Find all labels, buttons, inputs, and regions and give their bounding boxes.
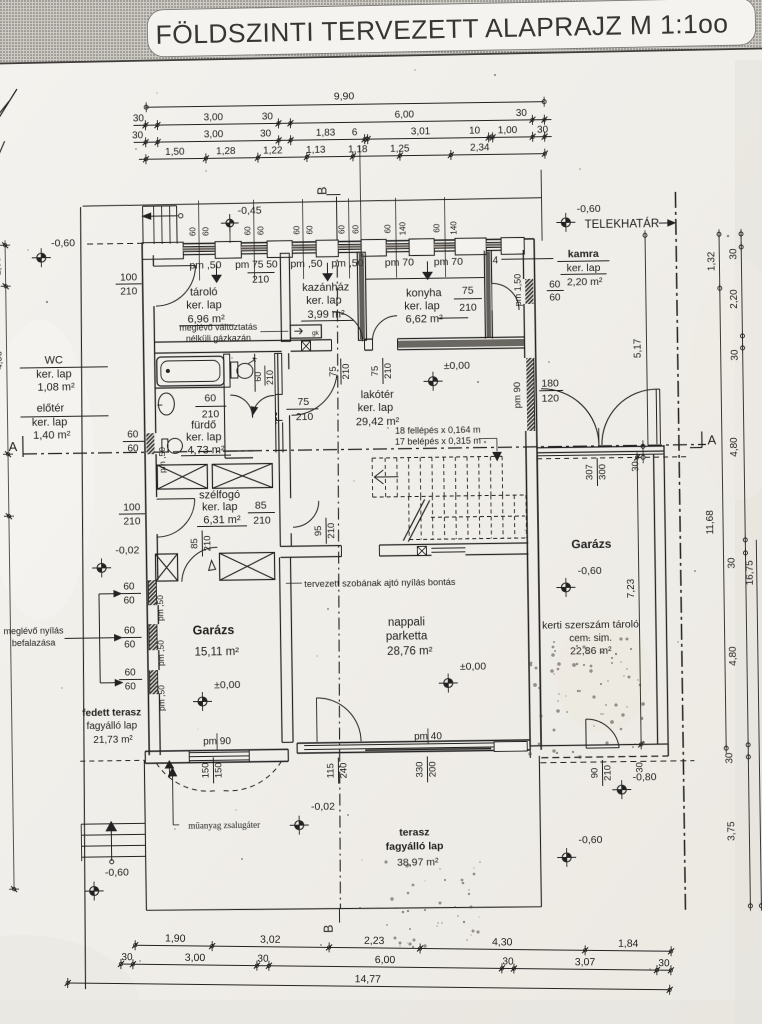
svg-text:cem. sim.: cem. sim. xyxy=(569,633,612,645)
svg-text:1,08 m²: 1,08 m² xyxy=(37,381,75,394)
svg-text:kamra: kamra xyxy=(568,248,599,260)
svg-text:210: 210 xyxy=(602,765,613,781)
svg-text:1,00: 1,00 xyxy=(498,125,518,136)
svg-text:60: 60 xyxy=(125,681,137,692)
svg-text:pm ,50: pm ,50 xyxy=(156,640,166,666)
svg-text:szélfogó: szélfogó xyxy=(199,489,240,502)
svg-text:60: 60 xyxy=(127,443,139,454)
svg-text:ker. lap: ker. lap xyxy=(358,402,394,414)
svg-text:befalazása: befalazása xyxy=(12,638,56,649)
svg-text:150: 150 xyxy=(213,762,224,778)
svg-text:kerti szerszám tároló: kerti szerszám tároló xyxy=(542,618,639,631)
svg-text:15,11 m²: 15,11 m² xyxy=(194,646,239,659)
svg-text:Garázs: Garázs xyxy=(193,623,235,638)
svg-text:6,00: 6,00 xyxy=(395,109,415,120)
svg-text:ker. lap: ker. lap xyxy=(32,416,68,428)
svg-text:4,80: 4,80 xyxy=(728,646,739,666)
svg-text:30: 30 xyxy=(257,954,269,965)
svg-text:3,02: 3,02 xyxy=(260,934,281,946)
svg-text:210: 210 xyxy=(341,363,352,379)
svg-text:6,00: 6,00 xyxy=(375,954,396,966)
svg-text:2,34: 2,34 xyxy=(470,142,490,153)
svg-text:gk: gk xyxy=(312,330,320,337)
svg-text:14,77: 14,77 xyxy=(355,973,382,985)
svg-text:-0,80: -0,80 xyxy=(633,771,657,783)
svg-text:1,28: 1,28 xyxy=(216,146,236,157)
svg-text:60: 60 xyxy=(123,595,135,606)
svg-text:1,25: 1,25 xyxy=(390,144,410,155)
svg-text:ker. lap: ker. lap xyxy=(36,368,72,380)
svg-text:60: 60 xyxy=(188,227,197,237)
svg-text:30: 30 xyxy=(262,111,274,122)
svg-text:3,75: 3,75 xyxy=(726,821,737,841)
svg-text:ker. lap: ker. lap xyxy=(202,501,238,513)
svg-text:1,40 m²: 1,40 m² xyxy=(33,429,71,442)
svg-text:115: 115 xyxy=(325,763,336,778)
svg-text:60: 60 xyxy=(124,667,136,678)
svg-text:30: 30 xyxy=(630,461,641,472)
svg-text:2,23: 2,23 xyxy=(364,935,385,947)
svg-text:30: 30 xyxy=(728,248,739,260)
svg-text:pm ,50: pm ,50 xyxy=(331,257,363,269)
svg-text:fagyálló lap: fagyálló lap xyxy=(386,840,444,853)
svg-text:TELEKHATÁR: TELEKHATÁR xyxy=(585,217,660,231)
svg-text:140: 140 xyxy=(449,221,458,235)
svg-text:fedett terasz: fedett terasz xyxy=(82,707,141,719)
svg-text:100: 100 xyxy=(123,502,140,513)
svg-text:30: 30 xyxy=(724,752,735,764)
svg-text:1,22: 1,22 xyxy=(263,145,283,156)
svg-text:tároló: tároló xyxy=(190,286,218,298)
svg-text:75: 75 xyxy=(370,366,381,377)
svg-text:pm 70: pm 70 xyxy=(385,257,415,269)
svg-text:150: 150 xyxy=(200,762,211,778)
svg-text:6,62 m²: 6,62 m² xyxy=(405,313,443,326)
svg-text:60: 60 xyxy=(549,279,561,290)
svg-text:210: 210 xyxy=(296,411,314,423)
svg-text:meglévő nyílás: meglévő nyílás xyxy=(3,625,64,636)
svg-text:-0,60: -0,60 xyxy=(51,237,75,249)
svg-text:B: B xyxy=(322,924,336,933)
svg-text:21,73 m²: 21,73 m² xyxy=(93,734,133,746)
svg-text:10: 10 xyxy=(469,126,481,137)
svg-text:WC: WC xyxy=(44,354,63,366)
svg-text:75: 75 xyxy=(297,396,309,408)
svg-text:18 fellépés x 0,164 m: 18 fellépés x 0,164 m xyxy=(395,425,481,436)
svg-text:6,31 m²: 6,31 m² xyxy=(203,514,241,527)
svg-text:60: 60 xyxy=(549,292,561,303)
svg-text:85: 85 xyxy=(255,500,267,512)
svg-text:3,07: 3,07 xyxy=(575,956,596,968)
svg-text:Garázs: Garázs xyxy=(571,537,612,552)
svg-text:30: 30 xyxy=(260,128,272,139)
svg-text:210: 210 xyxy=(265,370,275,385)
svg-text:előtér: előtér xyxy=(37,402,65,414)
svg-text:±0,00: ±0,00 xyxy=(444,360,471,372)
svg-text:lakótér: lakótér xyxy=(361,389,395,401)
svg-text:100: 100 xyxy=(120,272,137,283)
svg-text:30: 30 xyxy=(121,952,133,963)
svg-text:kazánház: kazánház xyxy=(302,281,349,294)
svg-text:85: 85 xyxy=(189,538,200,549)
svg-text:±0,00: ±0,00 xyxy=(214,679,241,691)
svg-text:4,30: 4,30 xyxy=(492,936,513,948)
svg-text:300: 300 xyxy=(597,464,608,480)
svg-text:60: 60 xyxy=(124,625,136,636)
svg-text:29,42 m²: 29,42 m² xyxy=(356,416,400,429)
svg-text:90: 90 xyxy=(589,768,600,779)
svg-text:60: 60 xyxy=(292,225,301,235)
svg-text:30: 30 xyxy=(502,956,514,967)
svg-text:parketta: parketta xyxy=(386,630,428,643)
svg-text:17 belépés x 0,315 m: 17 belépés x 0,315 m xyxy=(395,436,481,447)
svg-text:-0,02: -0,02 xyxy=(115,544,139,556)
svg-text:A: A xyxy=(707,432,716,447)
svg-text:210: 210 xyxy=(120,286,137,297)
svg-text:nappali: nappali xyxy=(388,616,425,629)
svg-text:11,68: 11,68 xyxy=(705,510,716,535)
svg-text:30: 30 xyxy=(537,125,549,136)
svg-text:B: B xyxy=(315,187,329,196)
svg-text:tervezett szobának ajtó nyílás: tervezett szobának ajtó nyílás bontás xyxy=(304,577,456,589)
svg-text:fagyálló lap: fagyálló lap xyxy=(86,720,137,732)
svg-text:ker. lap: ker. lap xyxy=(404,300,440,312)
svg-text:210: 210 xyxy=(252,275,269,286)
svg-text:ker. lap: ker. lap xyxy=(306,295,342,307)
svg-text:60: 60 xyxy=(432,223,441,233)
svg-text:pm ,50: pm ,50 xyxy=(156,685,166,711)
svg-text:28,76 m²: 28,76 m² xyxy=(387,645,433,658)
svg-text:ker. lap: ker. lap xyxy=(186,431,222,443)
svg-text:60: 60 xyxy=(305,225,314,235)
svg-text:38,97 m²: 38,97 m² xyxy=(397,856,439,869)
svg-text:30: 30 xyxy=(133,113,145,124)
svg-text:1,84: 1,84 xyxy=(618,938,639,950)
svg-text:-0,02: -0,02 xyxy=(311,801,335,813)
svg-text:fürdő: fürdő xyxy=(191,419,216,431)
svg-text:4,00: 4,00 xyxy=(0,351,5,370)
svg-text:meglévő változtatás: meglévő változtatás xyxy=(179,322,257,333)
svg-text:6: 6 xyxy=(352,127,358,138)
svg-text:7,23: 7,23 xyxy=(626,578,637,598)
svg-text:30: 30 xyxy=(730,349,741,361)
svg-text:1,50: 1,50 xyxy=(165,147,185,158)
svg-text:140: 140 xyxy=(398,221,407,235)
svg-text:pm 75 50: pm 75 50 xyxy=(235,259,278,271)
svg-text:pm 70: pm 70 xyxy=(434,256,464,268)
svg-text:4: 4 xyxy=(493,255,499,266)
svg-text:120: 120 xyxy=(541,392,559,404)
svg-text:pm ,50: pm ,50 xyxy=(155,595,165,621)
svg-text:30: 30 xyxy=(516,108,528,119)
svg-text:1,32: 1,32 xyxy=(706,251,717,271)
svg-text:60: 60 xyxy=(127,429,139,440)
svg-text:-0,60: -0,60 xyxy=(578,834,602,846)
svg-text:terasz: terasz xyxy=(399,826,430,838)
svg-text:3,00: 3,00 xyxy=(185,952,206,964)
svg-text:60: 60 xyxy=(337,224,346,234)
svg-text:210: 210 xyxy=(253,515,271,527)
svg-text:1,18: 1,18 xyxy=(348,144,368,155)
svg-text:A: A xyxy=(8,439,17,454)
svg-text:60: 60 xyxy=(351,224,360,234)
svg-text:9,90: 9,90 xyxy=(334,90,355,102)
svg-text:75: 75 xyxy=(462,285,474,297)
svg-text:210: 210 xyxy=(383,363,394,379)
svg-text:60: 60 xyxy=(243,226,252,236)
svg-text:4,80: 4,80 xyxy=(729,437,740,457)
svg-text:pm 90: pm 90 xyxy=(512,382,523,409)
svg-text:60: 60 xyxy=(204,392,216,404)
svg-text:210: 210 xyxy=(326,523,337,539)
svg-text:-0,60: -0,60 xyxy=(577,203,601,215)
svg-text:200: 200 xyxy=(427,761,438,777)
svg-text:5,17: 5,17 xyxy=(632,338,643,358)
svg-text:3,01: 3,01 xyxy=(411,126,431,137)
svg-text:30: 30 xyxy=(132,130,144,141)
svg-text:180: 180 xyxy=(541,377,559,389)
svg-text:60: 60 xyxy=(123,581,135,592)
svg-text:210: 210 xyxy=(123,516,140,527)
svg-text:1,90: 1,90 xyxy=(165,933,186,945)
svg-text:307: 307 xyxy=(584,464,595,480)
svg-text:konyha: konyha xyxy=(406,287,443,300)
svg-text:pm ,50: pm ,50 xyxy=(290,258,322,270)
svg-text:pm 1,50: pm 1,50 xyxy=(513,274,523,307)
svg-text:műanyag zsalugáter: műanyag zsalugáter xyxy=(188,820,260,831)
svg-text:60: 60 xyxy=(201,226,210,236)
svg-text:2,20 m²: 2,20 m² xyxy=(567,276,603,289)
svg-text:-0,60: -0,60 xyxy=(105,867,129,879)
svg-text:1,13: 1,13 xyxy=(306,145,326,156)
svg-text:16,75: 16,75 xyxy=(745,560,756,586)
svg-text:3,00: 3,00 xyxy=(204,112,224,123)
svg-text:3,99 m²: 3,99 m² xyxy=(307,308,345,321)
svg-text:30: 30 xyxy=(658,958,670,969)
svg-text:1,00: 1,00 xyxy=(0,257,4,276)
svg-text:-0,45: -0,45 xyxy=(238,205,262,217)
svg-text:30: 30 xyxy=(727,557,738,569)
svg-text:330: 330 xyxy=(414,761,425,777)
svg-text:210: 210 xyxy=(459,302,477,314)
svg-text:95: 95 xyxy=(313,525,324,536)
svg-text:ker. lap: ker. lap xyxy=(566,262,600,274)
svg-text:3,00: 3,00 xyxy=(204,129,224,140)
svg-text:-0,60: -0,60 xyxy=(578,565,602,577)
svg-text:ker. lap: ker. lap xyxy=(186,299,222,311)
svg-text:±0,00: ±0,00 xyxy=(460,661,487,673)
svg-text:nélküli gázkazán: nélküli gázkazán xyxy=(186,333,251,344)
svg-text:240: 240 xyxy=(338,763,349,779)
svg-text:1,83: 1,83 xyxy=(316,128,336,139)
svg-text:60: 60 xyxy=(383,224,392,234)
svg-text:60: 60 xyxy=(124,639,136,650)
svg-text:60: 60 xyxy=(256,226,265,236)
svg-text:2,20: 2,20 xyxy=(729,289,740,309)
